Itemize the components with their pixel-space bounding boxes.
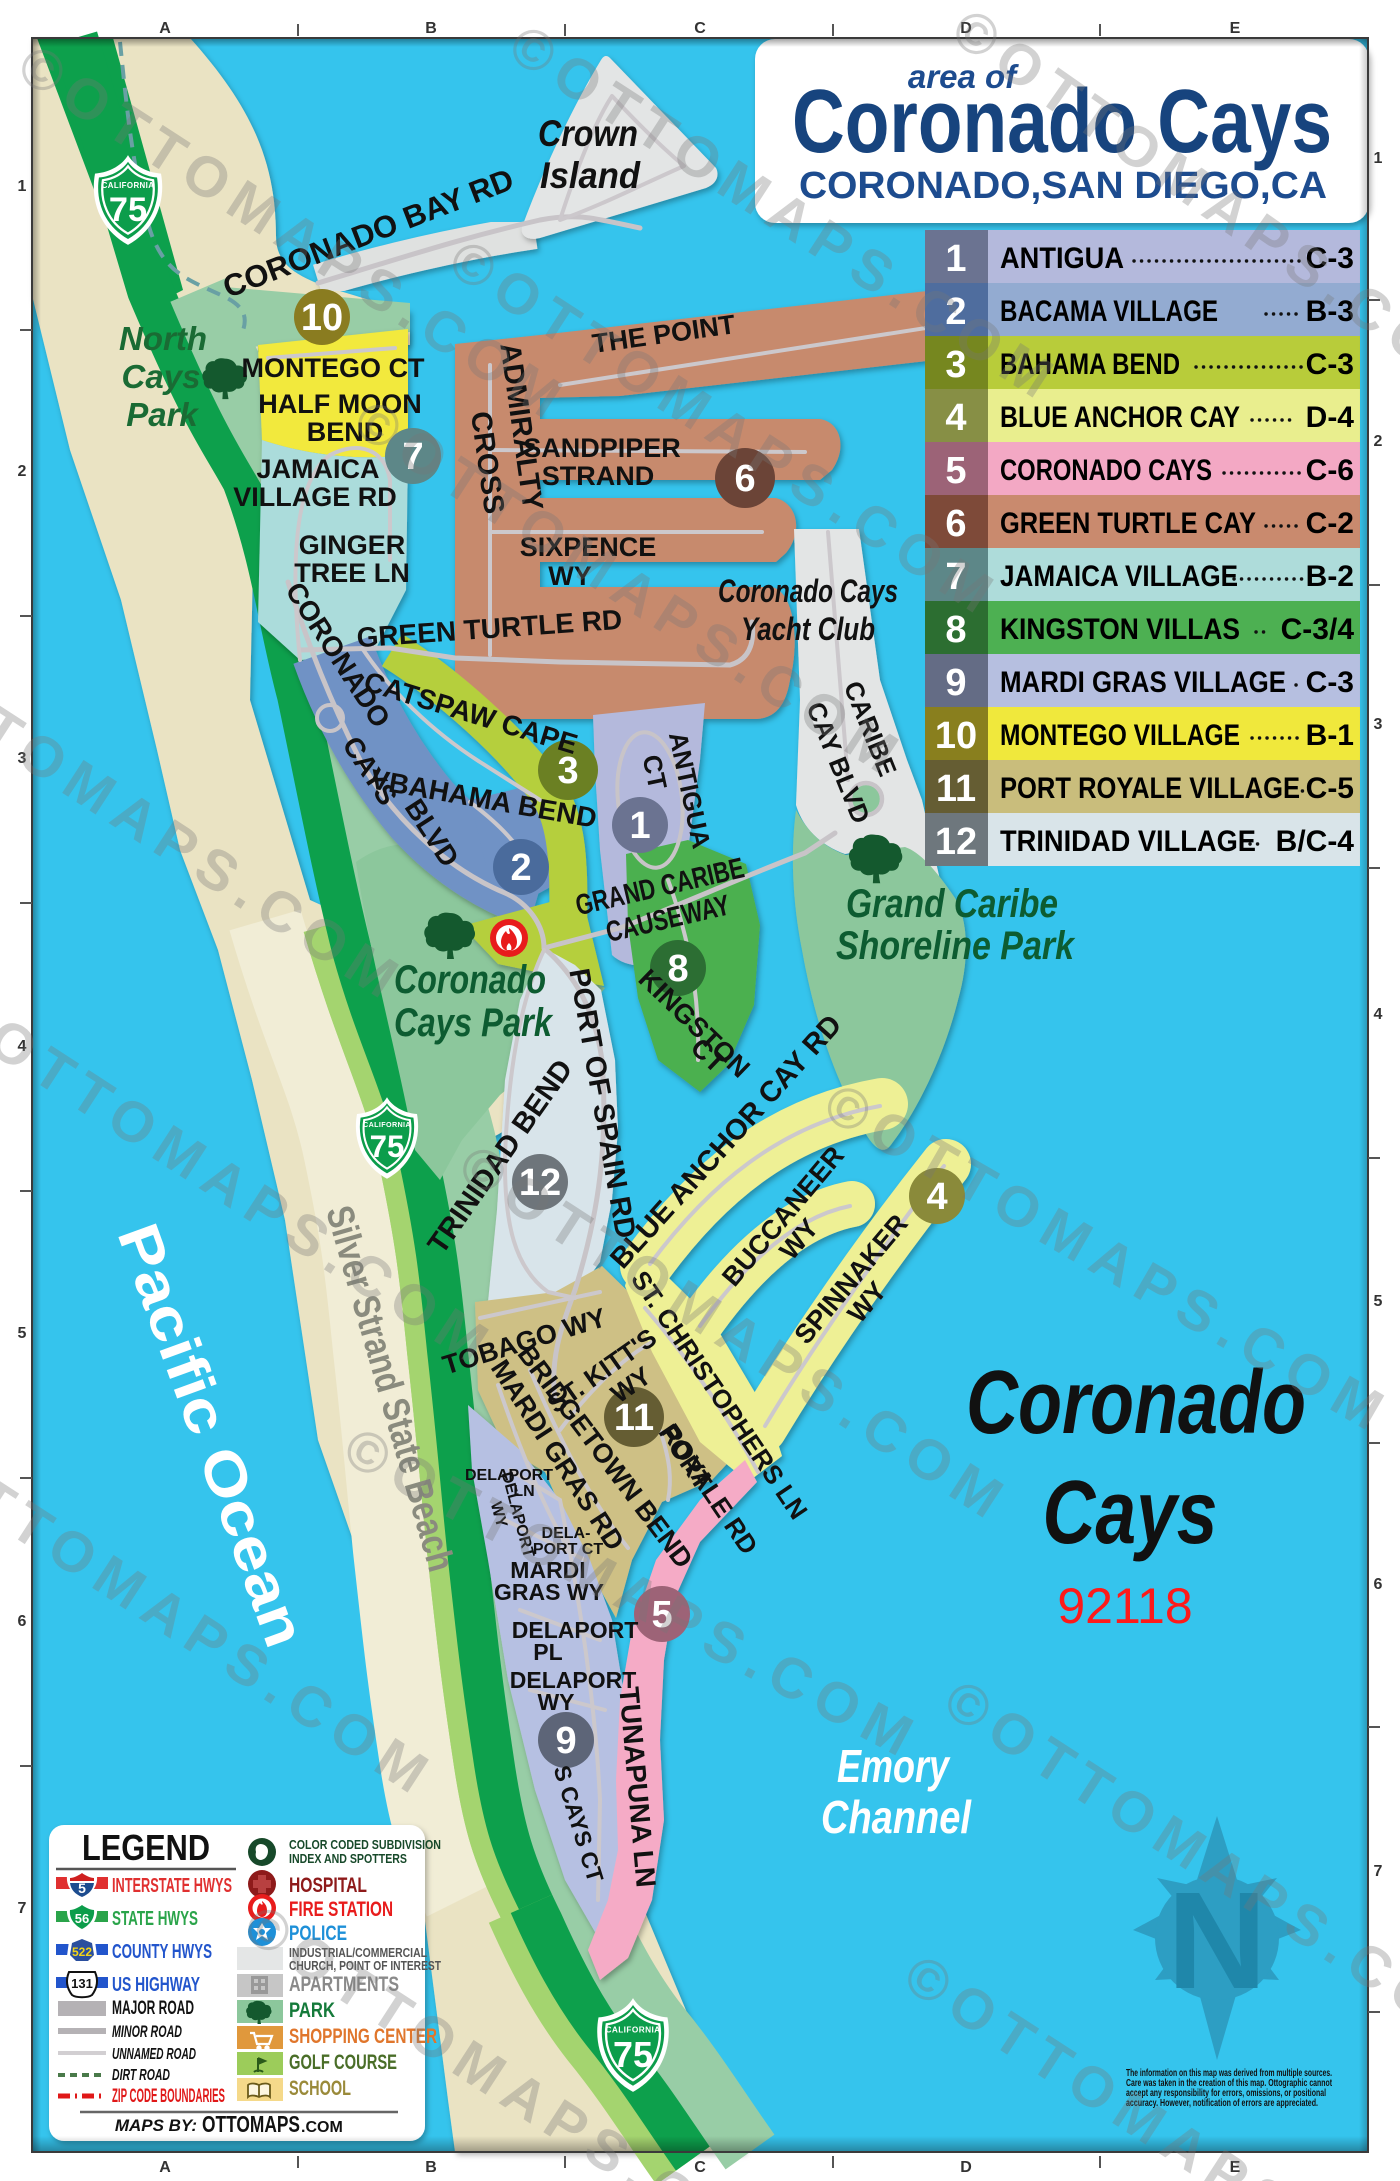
svg-text:2: 2: [1374, 433, 1383, 450]
svg-text:BACAMA VILLAGE: BACAMA VILLAGE: [1000, 295, 1218, 328]
svg-text:MAJOR ROAD: MAJOR ROAD: [112, 1998, 194, 2019]
svg-text:12: 12: [935, 821, 977, 863]
svg-text:GOLF COURSE: GOLF COURSE: [289, 2051, 397, 2074]
svg-text:522: 522: [72, 1945, 92, 1959]
svg-text:Coronado: Coronado: [394, 958, 546, 1002]
svg-text:MINOR ROAD: MINOR ROAD: [112, 2022, 182, 2041]
svg-text:CORONADO CAYS: CORONADO CAYS: [1000, 454, 1212, 487]
svg-text:1: 1: [1374, 150, 1383, 167]
svg-text:PORT ROYALE VILLAGE: PORT ROYALE VILLAGE: [1000, 772, 1300, 805]
svg-text:Park: Park: [126, 396, 199, 433]
svg-text:Coronado Cays: Coronado Cays: [718, 573, 898, 609]
svg-text:10: 10: [301, 297, 343, 339]
svg-text:C-3: C-3: [1306, 666, 1354, 699]
svg-text:UNNAMED ROAD: UNNAMED ROAD: [112, 2046, 196, 2063]
svg-text:OTTOMAPS: OTTOMAPS: [202, 2111, 300, 2137]
svg-text:Island: Island: [540, 155, 641, 196]
svg-text:Cays: Cays: [1043, 1463, 1218, 1563]
svg-text:Channel: Channel: [821, 1791, 972, 1843]
svg-text:A: A: [159, 20, 171, 37]
svg-text:PL: PL: [533, 1639, 562, 1665]
svg-text:WY: WY: [537, 1689, 574, 1715]
svg-text:MARDI GRAS VILLAGE: MARDI GRAS VILLAGE: [1000, 666, 1286, 699]
svg-text:DIRT ROAD: DIRT ROAD: [112, 2067, 170, 2084]
svg-text:C-2: C-2: [1306, 507, 1354, 540]
svg-text:JAMAICA: JAMAICA: [256, 454, 379, 484]
svg-text:131: 131: [71, 1976, 93, 1991]
svg-text:SCHOOL: SCHOOL: [289, 2077, 351, 2100]
svg-text:US HIGHWAY: US HIGHWAY: [112, 1974, 200, 1996]
svg-text:2: 2: [510, 847, 531, 889]
svg-text:6: 6: [18, 1613, 27, 1630]
svg-text:INTERSTATE HWYS: INTERSTATE HWYS: [112, 1875, 232, 1897]
svg-text:C: C: [694, 20, 706, 37]
svg-text:B-2: B-2: [1306, 560, 1354, 593]
svg-text:Shoreline Park: Shoreline Park: [836, 924, 1075, 968]
svg-text:1: 1: [629, 805, 650, 847]
svg-text:E: E: [1230, 20, 1241, 37]
svg-text:56: 56: [75, 1911, 89, 1926]
svg-text:B: B: [425, 2159, 437, 2176]
svg-text:MAPS BY:: MAPS BY:: [115, 2116, 197, 2135]
svg-text:9: 9: [945, 662, 966, 704]
svg-text:6: 6: [1374, 1576, 1383, 1593]
svg-text:MONTEGO VILLAGE: MONTEGO VILLAGE: [1000, 719, 1240, 752]
svg-text:JAMAICA VILLAGE: JAMAICA VILLAGE: [1000, 560, 1238, 593]
svg-text:KINGSTON VILLAS: KINGSTON VILLAS: [1000, 613, 1240, 646]
svg-text:4: 4: [945, 397, 966, 439]
svg-text:ANTIGUA: ANTIGUA: [1000, 242, 1124, 275]
svg-text:COLOR CODED SUBDIVISION: COLOR CODED SUBDIVISION: [289, 1837, 441, 1852]
svg-text:10: 10: [935, 715, 977, 757]
svg-text:B/C-4: B/C-4: [1276, 825, 1355, 858]
svg-text:COUNTY HWYS: COUNTY HWYS: [112, 1941, 212, 1963]
svg-text:11: 11: [936, 768, 976, 810]
svg-text:A: A: [159, 2159, 171, 2176]
svg-text:9: 9: [555, 1720, 576, 1762]
svg-text:SANDPIPER: SANDPIPER: [523, 433, 681, 463]
svg-text:C-6: C-6: [1306, 454, 1354, 487]
svg-text:ZIP CODE BOUNDARIES: ZIP CODE BOUNDARIES: [112, 2086, 225, 2107]
svg-text:.COM: .COM: [301, 2119, 343, 2136]
svg-text:STATE HWYS: STATE HWYS: [112, 1908, 198, 1930]
svg-text:HOSPITAL: HOSPITAL: [289, 1874, 367, 1897]
svg-text:VILLAGE RD: VILLAGE RD: [233, 482, 397, 512]
svg-text:Cays Park: Cays Park: [394, 1001, 553, 1045]
svg-text:INDEX AND SPOTTERS: INDEX AND SPOTTERS: [289, 1851, 407, 1866]
svg-text:B-1: B-1: [1306, 719, 1354, 752]
svg-text:7: 7: [1374, 1863, 1383, 1880]
svg-text:GREEN TURTLE CAY: GREEN TURTLE CAY: [1000, 507, 1256, 540]
svg-text:1: 1: [18, 178, 27, 195]
svg-text:B: B: [425, 20, 437, 37]
svg-text:1: 1: [945, 238, 966, 280]
svg-text:C-3/4: C-3/4: [1281, 613, 1355, 646]
svg-text:TREE LN: TREE LN: [294, 558, 410, 588]
svg-text:92118: 92118: [1057, 1578, 1192, 1634]
svg-text:5: 5: [78, 1880, 86, 1896]
svg-text:C-5: C-5: [1306, 772, 1354, 805]
svg-text:2: 2: [18, 463, 27, 480]
svg-text:5: 5: [18, 1325, 27, 1342]
svg-text:Cays: Cays: [122, 358, 201, 395]
svg-text:D-4: D-4: [1306, 401, 1355, 434]
svg-text:4: 4: [1374, 1006, 1383, 1023]
svg-text:STRAND: STRAND: [542, 461, 655, 491]
svg-text:MONTEGO CT: MONTEGO CT: [242, 353, 425, 383]
svg-text:C-3: C-3: [1306, 348, 1354, 381]
svg-text:GINGER: GINGER: [299, 530, 406, 560]
svg-text:7: 7: [18, 1900, 27, 1917]
svg-text:Grand Caribe: Grand Caribe: [846, 882, 1058, 926]
svg-text:TRINIDAD VILLAGE: TRINIDAD VILLAGE: [1000, 825, 1256, 858]
svg-text:North: North: [119, 320, 207, 357]
svg-text:5: 5: [1374, 1293, 1383, 1310]
svg-text:LEGEND: LEGEND: [82, 1827, 210, 1868]
svg-text:5: 5: [945, 450, 966, 492]
svg-text:D: D: [960, 2159, 972, 2176]
svg-text:3: 3: [1374, 716, 1383, 733]
